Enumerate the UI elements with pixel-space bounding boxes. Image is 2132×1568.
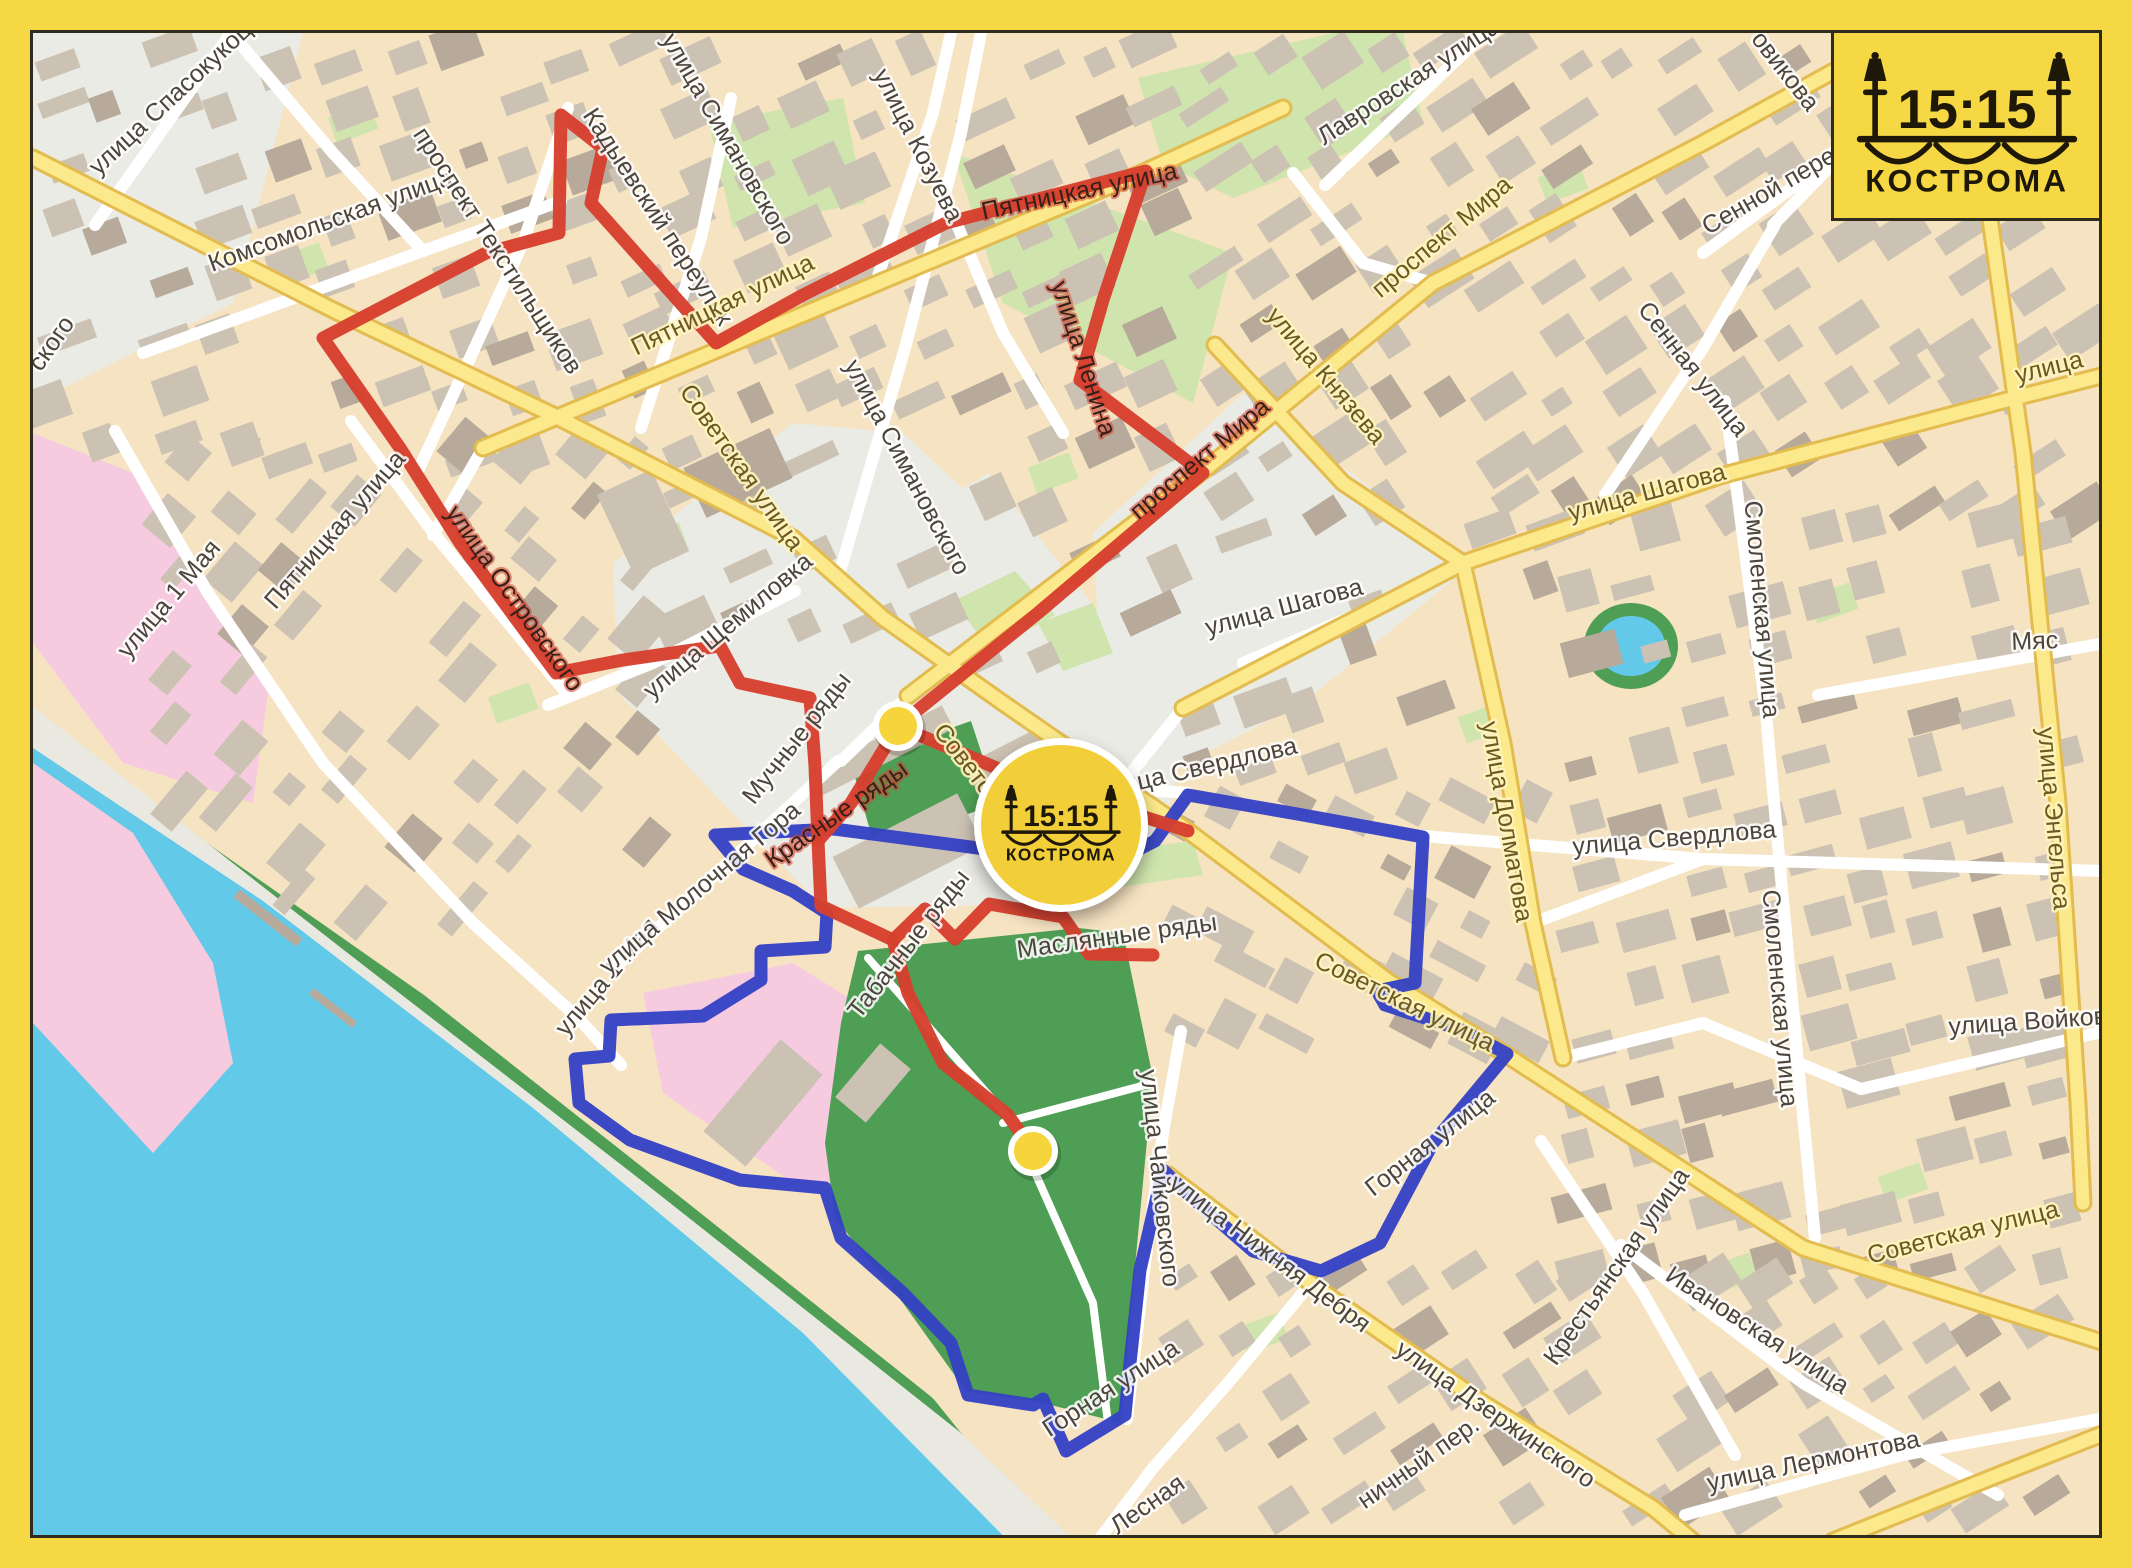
route-poster: улица СпасокукоцкогоскогоКомсомольская у… bbox=[0, 0, 2132, 1568]
route-point-square bbox=[876, 704, 920, 748]
brand-logo: 15:15 КОСТРОМА bbox=[1831, 33, 2099, 221]
bridge-icon bbox=[2004, 144, 2066, 161]
logo-city: КОСТРОМА bbox=[1865, 162, 2069, 198]
brand-logo-graphic: 15:15 КОСТРОМА bbox=[1000, 783, 1122, 867]
map-canvas[interactable]: улица СпасокукоцкогоскогоКомсомольская у… bbox=[30, 30, 2102, 1538]
street-label: Мяс bbox=[2011, 626, 2059, 656]
route-point-park bbox=[1011, 1129, 1055, 1173]
logo-time: 15:15 bbox=[1897, 78, 2036, 139]
badge-city: КОСТРОМА bbox=[1006, 845, 1116, 865]
brand-logo-graphic: 15:15 КОСТРОМА bbox=[1854, 51, 2080, 201]
bridge-icon bbox=[1081, 835, 1115, 844]
route-badge: 15:15 КОСТРОМА bbox=[974, 738, 1148, 912]
badge-time: 15:15 bbox=[1023, 800, 1098, 833]
